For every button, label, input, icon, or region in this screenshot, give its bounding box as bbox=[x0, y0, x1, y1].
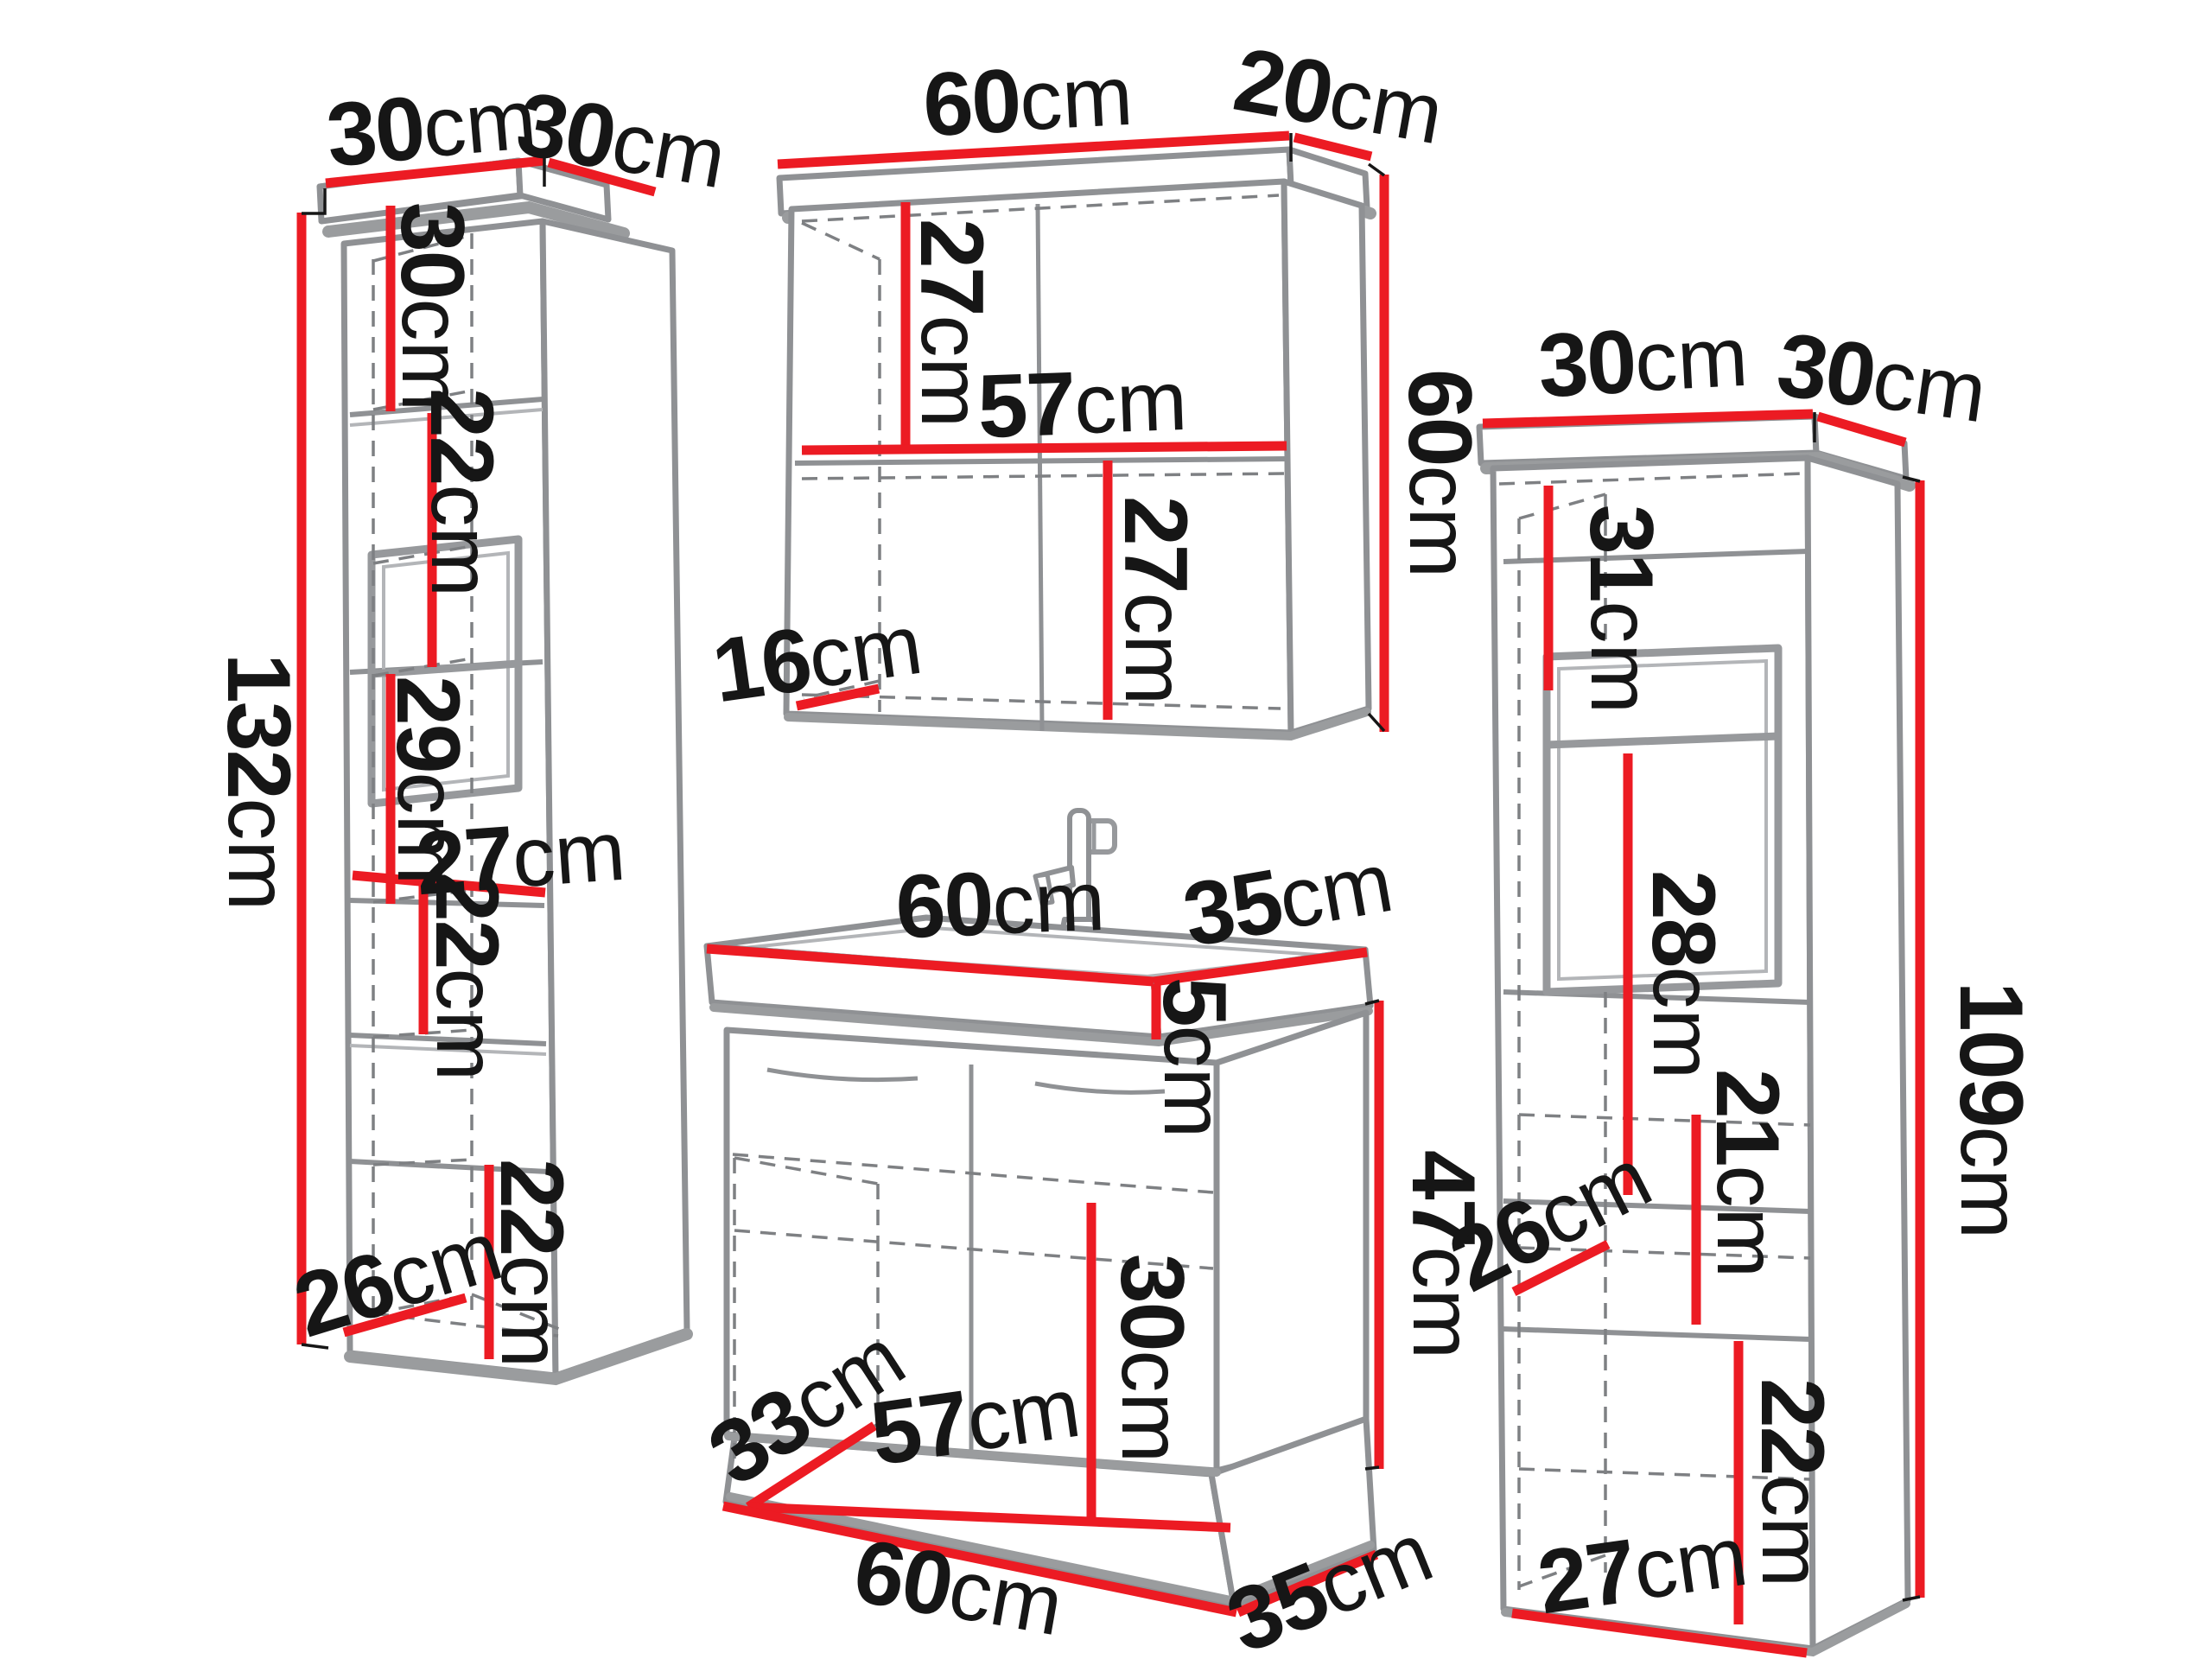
vanity-top-width-label: 60cm bbox=[894, 850, 1107, 957]
left-section4-label: 22cm bbox=[416, 872, 517, 1081]
left-section2-label: 22cm bbox=[411, 388, 512, 597]
left-section1-label: 30cm bbox=[382, 202, 482, 411]
dimension-tick bbox=[1365, 1467, 1379, 1469]
diagram-canvas: 30cm 30cm 132cm 30cm 22cm 29cm 27cm 22cm… bbox=[0, 0, 2212, 1659]
left-height-label: 132cm bbox=[208, 653, 308, 911]
vanity-inner-height-label: 30cm bbox=[1102, 1254, 1202, 1463]
mirror-top-width-label: 60cm bbox=[921, 45, 1135, 156]
wall-mirror-cabinet: 60cm 20cm 60cm 27cm 57cm 27cm 16cm bbox=[707, 29, 1490, 852]
right-section2-label: 28cm bbox=[1633, 870, 1733, 1079]
vanity-top-depth-label: 35cm bbox=[1176, 831, 1400, 966]
mirror-height-label: 60cm bbox=[1389, 369, 1490, 578]
right-section4-label: 22cm bbox=[1742, 1378, 1842, 1587]
mirror-inner-width-label: 57cm bbox=[976, 350, 1189, 457]
right-height-label: 109cm bbox=[1941, 982, 2041, 1239]
mirror-lower-section-label: 27cm bbox=[1105, 496, 1205, 705]
dimension-diagram: 30cm 30cm 132cm 30cm 22cm 29cm 27cm 22cm… bbox=[0, 0, 2212, 1659]
vanity-basin-height-label: 5cm bbox=[1144, 977, 1244, 1138]
right-top-width-label: 30cm bbox=[1536, 306, 1751, 417]
tall-cabinet-left: 30cm 30cm 132cm 30cm 22cm 29cm 27cm 22cm… bbox=[208, 68, 734, 1379]
right-section1-label: 31cm bbox=[1571, 505, 1671, 714]
mirror-top-depth-label: 20cm bbox=[1227, 29, 1451, 164]
tall-cabinet-right: 30cm 30cm 109cm 31cm 28cm 21cm 26cm 22cm… bbox=[1434, 306, 2040, 1653]
right-section3-label: 21cm bbox=[1697, 1069, 1797, 1278]
dimension-tick bbox=[1369, 164, 1384, 175]
cabinet-side-face bbox=[1284, 181, 1369, 733]
sink-vanity-cabinet: 60cm 35cm 5cm 47cm 30cm 33cm 57cm 60cm 3… bbox=[692, 810, 1493, 1659]
